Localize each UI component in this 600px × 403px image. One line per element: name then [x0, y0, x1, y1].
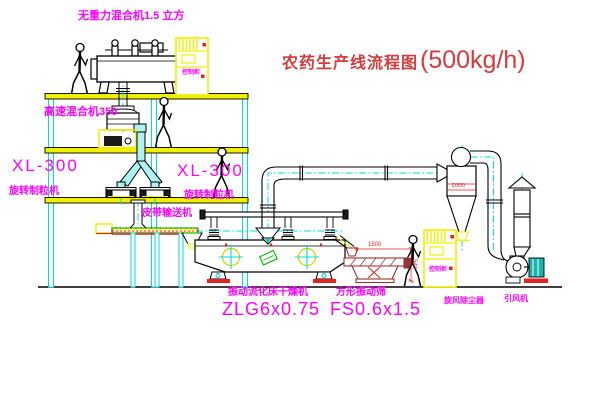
cyclone-marking-dimension: D300	[452, 184, 465, 190]
belt-conveyor-label: 皮带输送机	[142, 209, 192, 219]
granulator-right-name: 旋转制粒机	[184, 191, 234, 201]
granulator-left-drawing	[106, 188, 136, 198]
vibrating-sieve-drawing	[344, 247, 414, 284]
gravity-mixer-label: 无重力混合机1.5 立方	[78, 11, 184, 22]
cabinet-1-text: 控制柜	[182, 70, 200, 76]
cyclone-label: 旋风除尘器	[444, 297, 484, 305]
high-speed-mixer-label: 高速混合机350	[44, 107, 117, 118]
fan-drawing	[506, 256, 548, 283]
cabinet-2-text: 控制柜	[429, 267, 447, 273]
sieve-length-dimension: 1500	[368, 242, 381, 248]
granulator-left-name: 旋转制粒机	[9, 187, 59, 197]
control-cabinet-1	[176, 38, 208, 95]
fluid-bed-dryer-drawing	[195, 210, 348, 283]
sieve-model-label: FS0.6x1.5	[330, 300, 421, 318]
title-text: 农药生产线流程图	[282, 49, 418, 73]
flow-diagram-page: 农药生产线流程图 (500kg/h) 无重力混合机1.5 立方 高速混合机350…	[0, 0, 600, 403]
granulator-left-model: XL-300	[12, 157, 79, 174]
person-figure-top-floor	[72, 44, 88, 95]
exhaust-duct	[260, 164, 448, 228]
fan-label: 引风机	[504, 295, 528, 303]
dryer-feet	[207, 272, 336, 283]
granulator-right-drawing	[140, 188, 170, 198]
diagram-title: 农药生产线流程图 (500kg/h)	[282, 46, 526, 75]
dryer-model-label: ZLG6x0.75	[222, 300, 320, 318]
dryer-name-label: 振动流化床干燥机	[228, 288, 308, 298]
sieve-height-dimension: 540	[411, 259, 417, 269]
title-capacity: (500kg/h)	[420, 46, 526, 75]
sieve-name-label: 方形振动筛	[336, 288, 386, 298]
person-figure-second-floor	[156, 98, 172, 149]
granulator-right-model: XL-300	[177, 162, 244, 179]
cyclone-drawing	[447, 148, 476, 241]
control-cabinet-2	[424, 230, 456, 287]
